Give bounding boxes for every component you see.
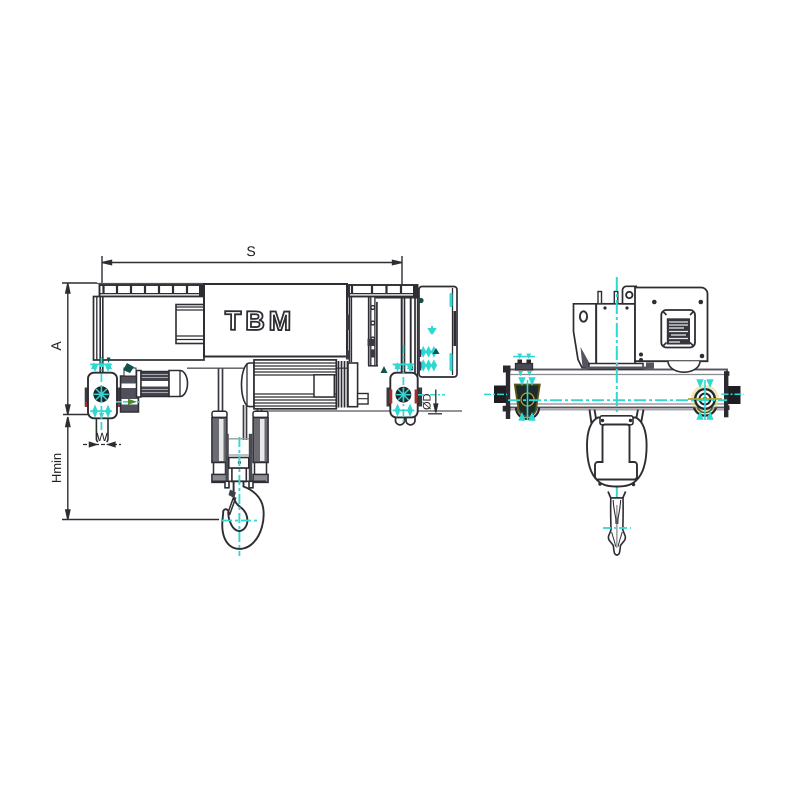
svg-text:TBM: TBM: [225, 306, 296, 336]
svg-text:W: W: [96, 430, 108, 444]
svg-text:S: S: [246, 243, 255, 259]
svg-text:ØD: ØD: [422, 393, 434, 410]
svg-text:A: A: [48, 341, 64, 351]
svg-text:Hmin: Hmin: [49, 453, 64, 483]
